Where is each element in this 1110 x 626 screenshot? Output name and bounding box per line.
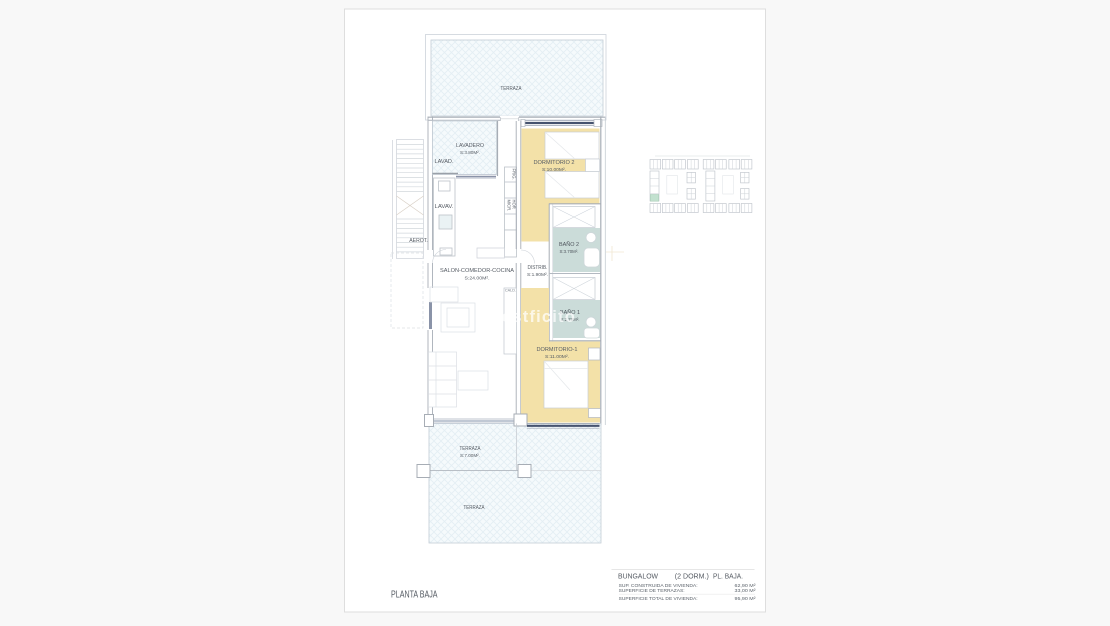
svg-text:MICR.: MICR. xyxy=(507,200,512,212)
svg-text:LAVADERO: LAVADERO xyxy=(456,143,484,149)
svg-text:95,90 M²: 95,90 M² xyxy=(735,596,756,602)
svg-text:PLANTA BAJA: PLANTA BAJA xyxy=(391,590,438,601)
svg-text:BAÑO 2: BAÑO 2 xyxy=(559,241,579,248)
svg-text:DORMITORIO-1: DORMITORIO-1 xyxy=(537,347,578,353)
svg-text:S:10.00M².: S:10.00M². xyxy=(542,167,566,172)
svg-text:DORMITORIO 2: DORMITORIO 2 xyxy=(534,160,575,166)
svg-text:S:3.80M².: S:3.80M². xyxy=(460,150,480,155)
svg-text:S:3.70M².: S:3.70M². xyxy=(560,249,579,254)
svg-text:TERRAZA: TERRAZA xyxy=(460,446,481,452)
svg-text:DISTRIB.: DISTRIB. xyxy=(528,265,548,271)
svg-text:TERRAZA: TERRAZA xyxy=(501,86,522,92)
svg-text:CALD.: CALD. xyxy=(505,289,516,293)
svg-text:LAVAV.: LAVAV. xyxy=(435,204,454,210)
svg-text:(2 DORM.): (2 DORM.) xyxy=(675,572,709,581)
svg-text:TERRAZA: TERRAZA xyxy=(464,505,485,511)
svg-text:PL. BAJA.: PL. BAJA. xyxy=(713,572,743,581)
svg-text:S:11.00M².: S:11.00M². xyxy=(545,354,569,359)
svg-text:estficito: estficito xyxy=(502,308,576,326)
svg-text:SUPERFICIE DE TERRAZAS:: SUPERFICIE DE TERRAZAS: xyxy=(619,588,685,594)
svg-text:S:7.00M².: S:7.00M². xyxy=(460,453,480,458)
svg-text:SALON-COMEDOR-COCINA: SALON-COMEDOR-COCINA xyxy=(440,268,514,274)
svg-text:LAVAD.: LAVAD. xyxy=(435,159,454,165)
svg-text:SUPERFICIE TOTAL DE VIVIENDA:: SUPERFICIE TOTAL DE VIVIENDA: xyxy=(619,596,698,602)
svg-text:BUNGALOW: BUNGALOW xyxy=(618,572,658,581)
svg-text:33,00 M²: 33,00 M² xyxy=(735,588,756,594)
svg-text:S:1.90M².: S:1.90M². xyxy=(527,272,548,277)
svg-text:S:24.00M².: S:24.00M². xyxy=(465,276,490,281)
svg-text:AEROT.: AEROT. xyxy=(409,238,428,244)
